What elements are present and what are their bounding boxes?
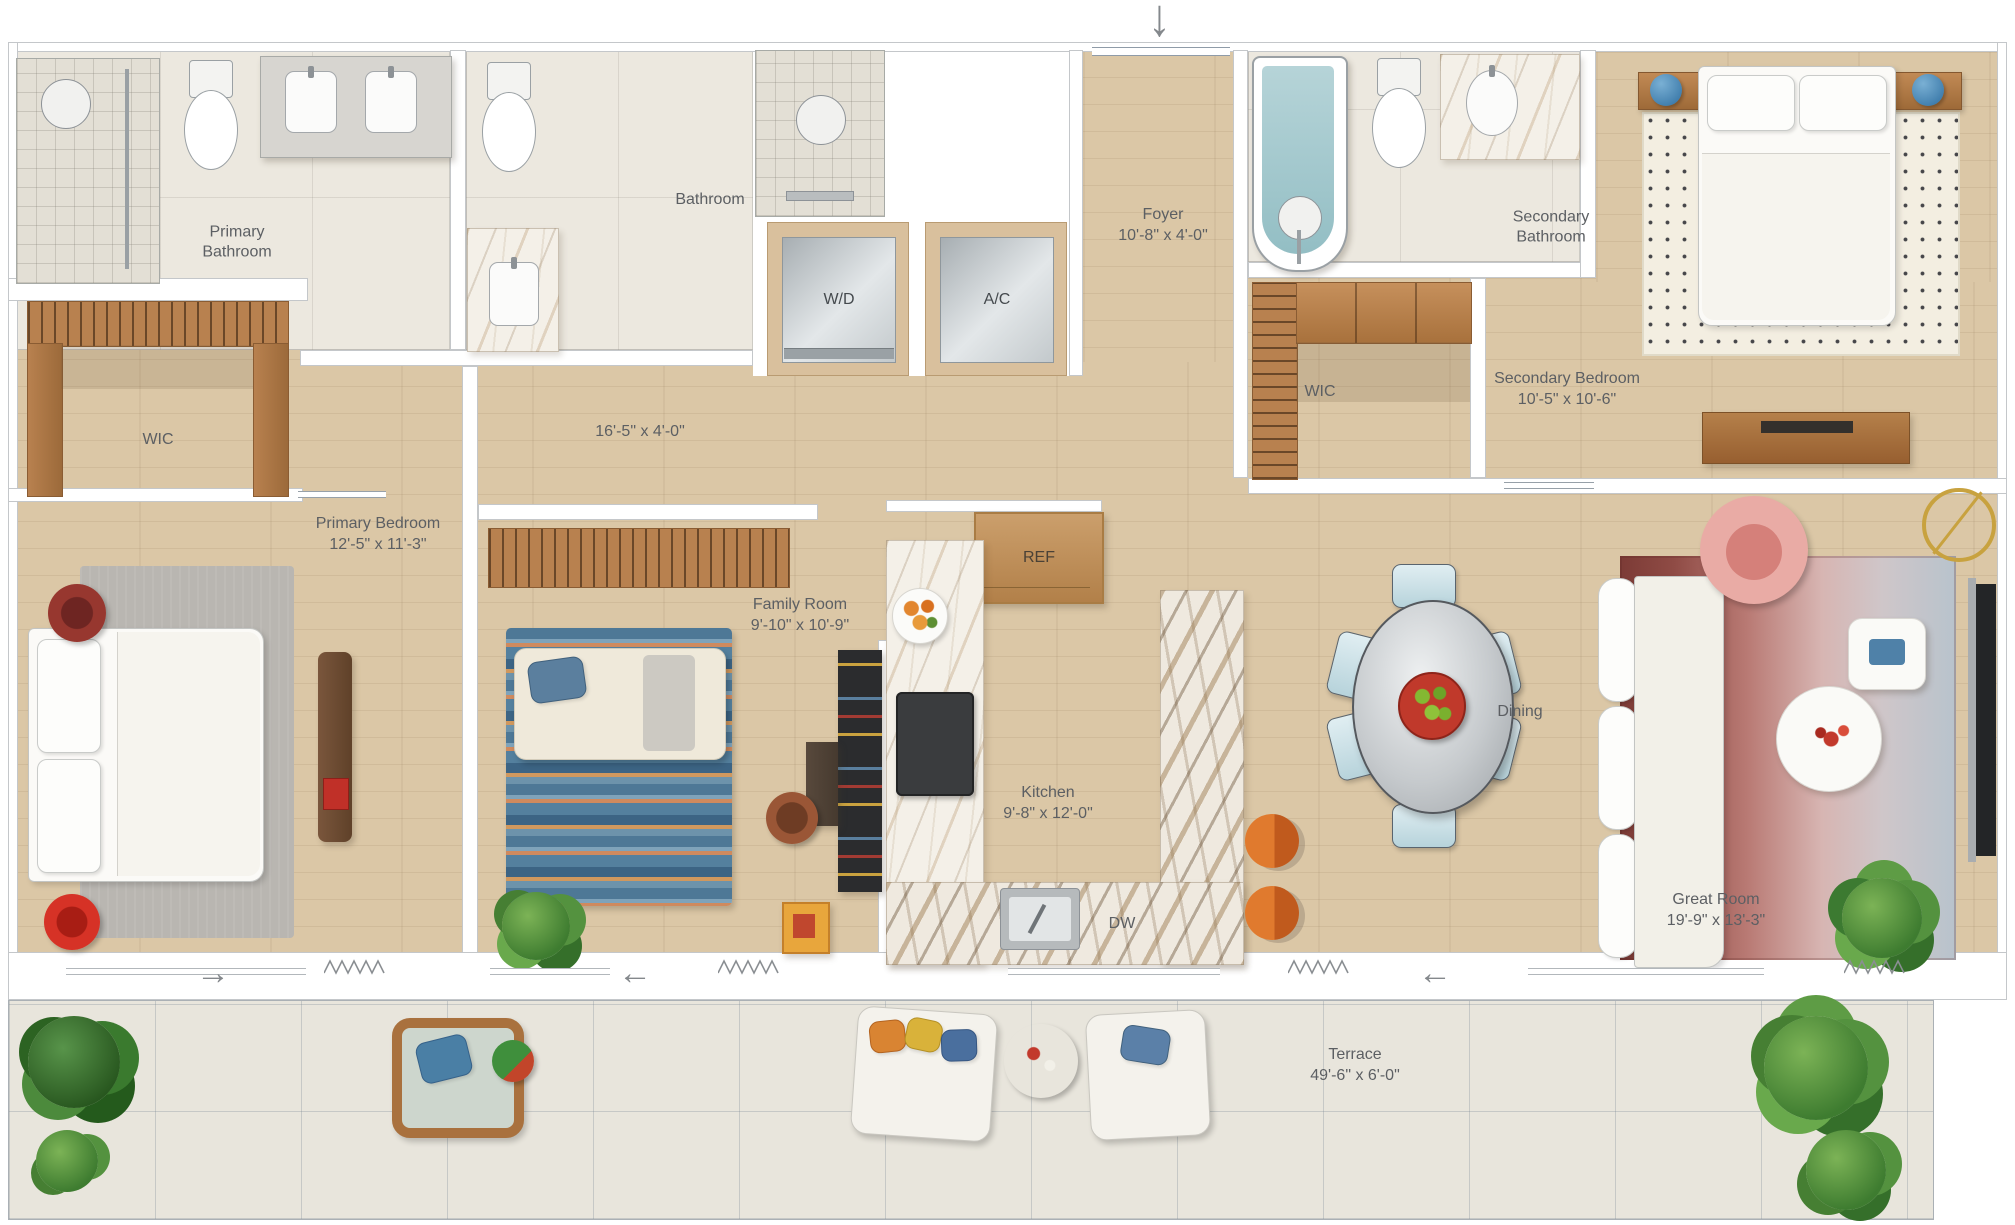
pouf: [492, 1040, 534, 1082]
side-table: [48, 584, 106, 642]
bookshelf: [838, 650, 882, 892]
terrace-label: Terrace49'-6" x 6'-0": [1310, 1045, 1400, 1087]
ac-closet: A/C: [925, 222, 1067, 376]
wardrobe-hanger-rod: [488, 528, 790, 588]
duvet: [117, 632, 260, 876]
potted-plant: [1806, 1130, 1886, 1210]
shower: [755, 50, 885, 217]
fruit-bowl: [892, 588, 948, 644]
daybed-sofa: [514, 648, 726, 760]
wall-segment: [300, 350, 753, 366]
shower-head-icon: [796, 95, 846, 145]
tv-backing: [1968, 578, 1976, 862]
window-sill: [1528, 968, 1764, 975]
entry-door-sill: [1092, 47, 1230, 56]
window-spring-icon: [1844, 958, 1908, 976]
throw-blanket: [643, 655, 695, 751]
shower-controls: [786, 191, 854, 201]
terrace-table: [1004, 1024, 1078, 1098]
kitchen-label: Kitchen9'-8" x 12'-0": [1003, 783, 1093, 825]
closet-shadow: [61, 345, 253, 389]
dining-label: Dining: [1497, 702, 1542, 722]
potted-plant: [28, 1016, 120, 1108]
bed: [1698, 66, 1896, 326]
bed: [28, 628, 264, 882]
window-spring-icon: [324, 958, 388, 976]
closet-panel: [253, 343, 289, 497]
dresser: [1702, 412, 1910, 464]
ac-unit: A/C: [940, 237, 1054, 363]
washer-dryer-closet: W/D: [767, 222, 909, 376]
shower-rail: [125, 69, 129, 269]
cooktop: [896, 692, 974, 796]
tv: [1976, 584, 1996, 856]
sun-lounger: [850, 1005, 999, 1142]
wall-segment: [1069, 50, 1083, 376]
primary-bedroom-label: Primary Bedroom12'-5" x 11'-3": [316, 514, 440, 556]
closet-cabinets: [1296, 282, 1472, 344]
floor-plan: ↓ W/D A/C: [0, 0, 2015, 1225]
wall-segment: [1248, 478, 2007, 494]
wall-segment: [1997, 42, 2007, 994]
window-spring-icon: [1288, 958, 1352, 976]
kitchen-sink: [1000, 888, 1080, 950]
desk-chair: [766, 792, 818, 844]
coffee-table: [1776, 686, 1882, 792]
washer-dryer-unit: W/D: [782, 237, 896, 363]
potted-plant: [1764, 1016, 1868, 1120]
window-sill: [1008, 968, 1220, 975]
toilet: [184, 60, 238, 170]
bench: [318, 652, 352, 842]
armchair-seat: [1726, 524, 1782, 580]
window-spring-icon: [718, 958, 782, 976]
wic-right-label: WIC: [1304, 382, 1335, 402]
lamp: [1912, 74, 1944, 106]
tub-spout: [1297, 230, 1301, 264]
bar-stool: [1245, 814, 1299, 868]
centerpiece-bowl: [1398, 672, 1466, 740]
wall-mirror: [1922, 488, 1996, 562]
family-room-label: Family Room9'-10" x 10'-9": [751, 595, 849, 637]
side-table: [1848, 618, 1926, 690]
vanity: [467, 228, 559, 352]
secondary-bedroom-label: Secondary Bedroom10'-5" x 10'-6": [1494, 369, 1640, 411]
wall-segment: [1233, 50, 1248, 478]
wall-segment: [8, 42, 2007, 52]
sofa-back-cushion: [1598, 578, 1638, 702]
wall-segment: [886, 500, 1102, 512]
toilet: [1372, 58, 1426, 168]
slide-right-arrow-icon: →: [196, 956, 230, 990]
entry-arrow-icon: ↓: [1148, 0, 1171, 43]
window-sill: [490, 968, 610, 975]
great-room-label: Great Room19'-9" x 13'-3": [1667, 890, 1765, 932]
shower-head-icon: [41, 79, 91, 129]
foyer-label: Foyer10'-8" x 4'-0": [1118, 205, 1208, 247]
wic-left-label: WIC: [142, 430, 173, 450]
bathtub: [1252, 56, 1348, 272]
potted-plant: [36, 1130, 98, 1192]
double-vanity: [260, 56, 452, 158]
potted-plant: [502, 892, 570, 960]
vanity: [1440, 54, 1580, 160]
slide-left-arrow-icon: ←: [1418, 956, 1452, 990]
duvet: [1702, 153, 1890, 320]
closet-hanger-rod: [1252, 282, 1298, 480]
dishwasher-label: DW: [1109, 914, 1136, 934]
secondary-bathroom-label: Secondary Bathroom: [1492, 208, 1610, 249]
potted-plant: [1842, 878, 1922, 958]
refrigerator: REF: [974, 512, 1104, 604]
door-sill: [298, 491, 386, 498]
lamp: [1650, 74, 1682, 106]
floor-cushion: [782, 902, 830, 954]
bar-stool: [1245, 886, 1299, 940]
wall-segment: [1470, 278, 1486, 478]
bathroom-label: Bathroom: [675, 190, 744, 210]
shower: [16, 58, 160, 284]
primary-bathroom-label: Primary Bathroom: [185, 223, 289, 264]
toilet: [482, 62, 536, 172]
sofa-back-cushion: [1598, 706, 1638, 830]
wall-segment: [450, 50, 466, 350]
hallway-dimension-label: 16'-5" x 4'-0": [595, 422, 685, 442]
door-sill: [1504, 482, 1594, 489]
slide-left-arrow-icon: ←: [618, 956, 652, 990]
wall-segment: [462, 366, 478, 956]
closet-hanger-rod: [27, 301, 289, 347]
sofa-back-cushion: [1598, 834, 1638, 958]
wall-segment: [478, 504, 818, 520]
window-sill: [66, 968, 306, 975]
side-table: [44, 894, 100, 950]
washer-dryer-drawer: [784, 348, 894, 359]
closet-panel: [27, 343, 63, 497]
sun-lounger: [1085, 1009, 1211, 1141]
